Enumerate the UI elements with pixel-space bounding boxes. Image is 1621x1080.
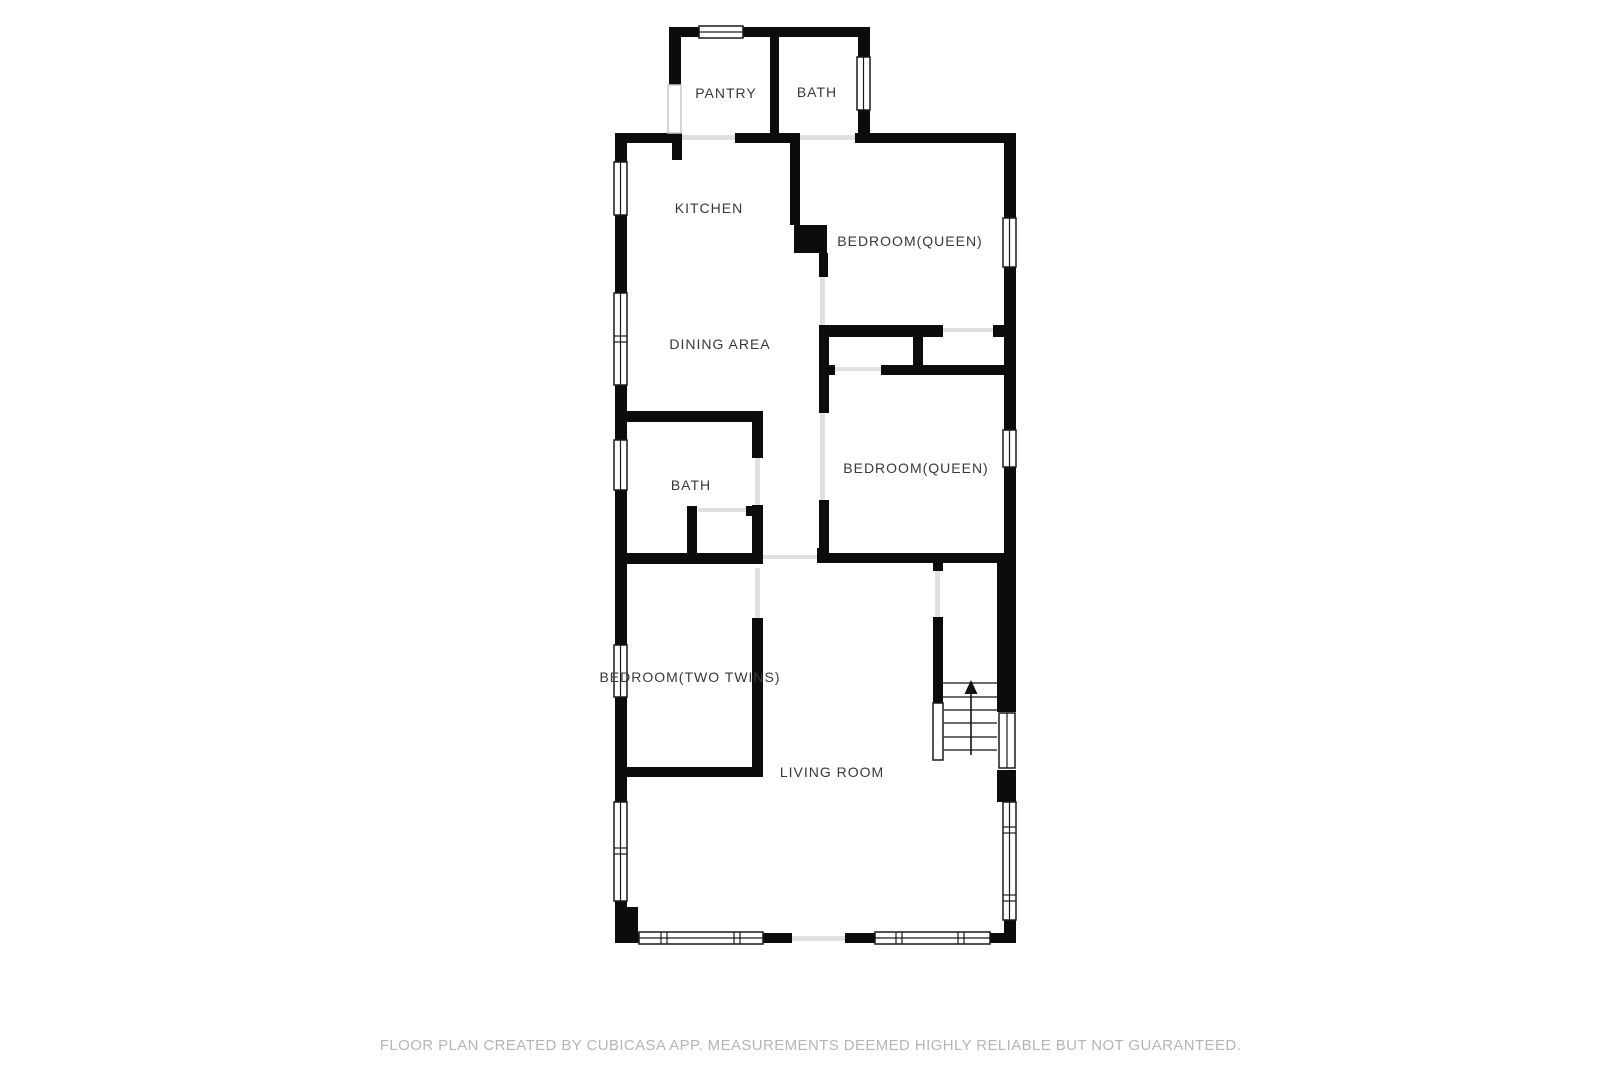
stairs-entry-threshold bbox=[935, 570, 940, 617]
window-dining-left bbox=[614, 293, 627, 385]
wall bbox=[990, 933, 1016, 943]
window-bath-top-right bbox=[857, 57, 870, 110]
wall bbox=[770, 37, 779, 143]
room-label-bedroom-twins: BEDROOM(TWO TWINS) bbox=[599, 669, 780, 685]
window-bedroom-lower-right bbox=[1003, 430, 1016, 467]
wall bbox=[933, 617, 943, 703]
wall bbox=[819, 325, 943, 337]
wall bbox=[615, 490, 627, 645]
wall bbox=[1004, 267, 1016, 430]
wall bbox=[615, 133, 682, 143]
wall bbox=[997, 553, 1016, 712]
wall bbox=[615, 933, 639, 943]
room-label-bath-middle: BATH bbox=[671, 477, 711, 493]
bedroom-lower-door-threshold bbox=[820, 413, 825, 500]
wall bbox=[819, 500, 829, 553]
wall bbox=[1004, 143, 1016, 218]
floor-plan-drawing bbox=[0, 0, 1621, 1080]
wall bbox=[997, 770, 1016, 802]
stairs-up-arrow-icon bbox=[965, 680, 978, 755]
closet1-threshold bbox=[835, 367, 881, 371]
bedroom-upper-door-threshold bbox=[820, 277, 825, 325]
bath-closet-threshold bbox=[698, 508, 746, 512]
bath-middle-door-threshold bbox=[755, 458, 760, 505]
wall bbox=[746, 506, 763, 516]
window-living-right bbox=[1003, 802, 1016, 920]
room-label-bath-top: BATH bbox=[797, 84, 837, 100]
window-bath-middle-left bbox=[614, 440, 627, 490]
room-label-pantry: PANTRY bbox=[695, 85, 757, 101]
wall bbox=[1004, 467, 1016, 553]
wall bbox=[855, 133, 1016, 143]
stair-stringer bbox=[933, 703, 943, 760]
wall bbox=[845, 933, 875, 943]
window-living-bottom-right bbox=[875, 932, 990, 944]
window-pantry-top bbox=[699, 26, 743, 38]
front-door-threshold bbox=[792, 936, 845, 941]
pantry-door-threshold bbox=[682, 135, 735, 140]
window-bedroom-upper-right bbox=[1003, 218, 1016, 267]
wall bbox=[817, 553, 1004, 563]
wall bbox=[627, 411, 763, 422]
wall bbox=[933, 563, 943, 571]
twins-door-threshold bbox=[755, 568, 760, 618]
wall bbox=[790, 133, 800, 225]
wall bbox=[615, 215, 627, 293]
hall-opening-threshold bbox=[763, 555, 817, 559]
window-stairs-right bbox=[999, 713, 1015, 768]
room-label-living: LIVING ROOM bbox=[780, 764, 884, 780]
door-thresholds bbox=[682, 135, 993, 941]
wall bbox=[615, 385, 627, 440]
wall bbox=[615, 697, 627, 802]
wall bbox=[627, 553, 763, 564]
wall bbox=[752, 411, 763, 458]
room-label-bedroom-upper: BEDROOM(QUEEN) bbox=[837, 233, 982, 249]
footer-disclaimer: FLOOR PLAN CREATED BY CUBICASA APP. MEAS… bbox=[0, 1037, 1621, 1054]
wall bbox=[858, 37, 870, 57]
wall bbox=[615, 143, 627, 162]
stairs bbox=[943, 680, 997, 755]
wall bbox=[752, 618, 763, 777]
window-living-bottom-left bbox=[639, 932, 763, 944]
room-label-kitchen: KITCHEN bbox=[675, 200, 743, 216]
wall bbox=[819, 365, 835, 375]
wall bbox=[735, 133, 790, 143]
wall bbox=[672, 143, 682, 160]
window-kitchen-left bbox=[614, 162, 627, 215]
wall bbox=[627, 767, 763, 777]
wall bbox=[881, 365, 1004, 375]
wall bbox=[669, 37, 681, 85]
floor-plan-page: PANTRY BATH KITCHEN BEDROOM(QUEEN) DININ… bbox=[0, 0, 1621, 1080]
opening-pantry-left bbox=[668, 85, 681, 133]
room-label-dining: DINING AREA bbox=[669, 336, 770, 352]
window-living-left bbox=[614, 802, 627, 901]
room-label-bedroom-lower: BEDROOM(QUEEN) bbox=[843, 460, 988, 476]
wall bbox=[913, 337, 923, 365]
wall bbox=[993, 325, 1004, 337]
wall bbox=[819, 253, 828, 277]
wall bbox=[763, 933, 792, 943]
wall bbox=[794, 225, 827, 253]
closet2-threshold bbox=[943, 328, 993, 332]
bath-top-door-threshold bbox=[800, 135, 855, 140]
